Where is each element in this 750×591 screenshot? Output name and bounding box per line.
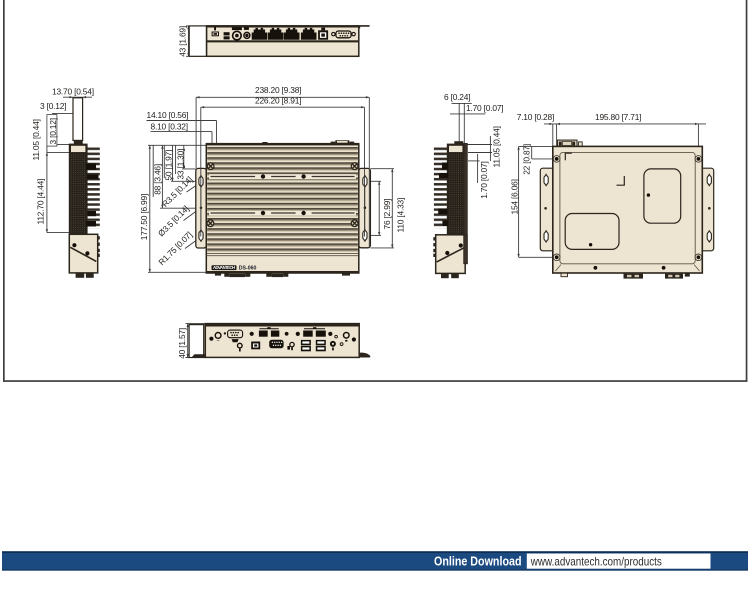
svg-text:43 [1.69]: 43 [1.69]	[178, 26, 188, 57]
svg-text:ADVANTECH: ADVANTECH	[213, 265, 235, 270]
svg-text:177.50 [6.99]: 177.50 [6.99]	[139, 194, 149, 240]
svg-text:8.10 [0.32]: 8.10 [0.32]	[151, 121, 188, 131]
svg-text:238.20 [9.38]: 238.20 [9.38]	[255, 85, 301, 95]
svg-text:112.70 [4.44]: 112.70 [4.44]	[35, 179, 45, 225]
svg-text:76 [2.99]: 76 [2.99]	[382, 199, 392, 230]
svg-text:7.10 [0.28]: 7.10 [0.28]	[517, 112, 554, 122]
svg-text:14.10 [0.56]: 14.10 [0.56]	[147, 110, 189, 120]
svg-text:195.80 [7.71]: 195.80 [7.71]	[595, 112, 641, 122]
svg-text:11.05 [0.44]: 11.05 [0.44]	[492, 126, 502, 167]
svg-text:6 [0.24]: 6 [0.24]	[444, 92, 470, 102]
svg-text:88 [3.46]: 88 [3.46]	[153, 164, 163, 195]
svg-text:40 [1.57]: 40 [1.57]	[177, 328, 187, 359]
svg-text:1.70 [0.07]: 1.70 [0.07]	[466, 103, 503, 113]
svg-text:110 [4.33]: 110 [4.33]	[395, 198, 405, 233]
svg-text:50 [1.97]: 50 [1.97]	[163, 150, 173, 181]
svg-text:3 [0.12]: 3 [0.12]	[40, 101, 66, 111]
svg-text:154 [6.06]: 154 [6.06]	[509, 179, 519, 214]
svg-text:DS-060: DS-060	[239, 266, 257, 272]
svg-text:33 [1.30]: 33 [1.30]	[175, 149, 185, 180]
svg-text:3 [0.12]: 3 [0.12]	[48, 118, 58, 144]
svg-text:226.20 [8.91]: 226.20 [8.91]	[255, 96, 301, 106]
svg-text:Online Download: Online Download	[434, 555, 522, 569]
svg-text:22 [0.87]: 22 [0.87]	[521, 144, 531, 175]
svg-text:www.advantech.com/products: www.advantech.com/products	[530, 554, 662, 568]
svg-text:13.70 [0.54]: 13.70 [0.54]	[52, 87, 94, 97]
svg-text:11.05 [0.44]: 11.05 [0.44]	[31, 119, 41, 160]
svg-text:1.70 [0.07]: 1.70 [0.07]	[479, 161, 489, 198]
